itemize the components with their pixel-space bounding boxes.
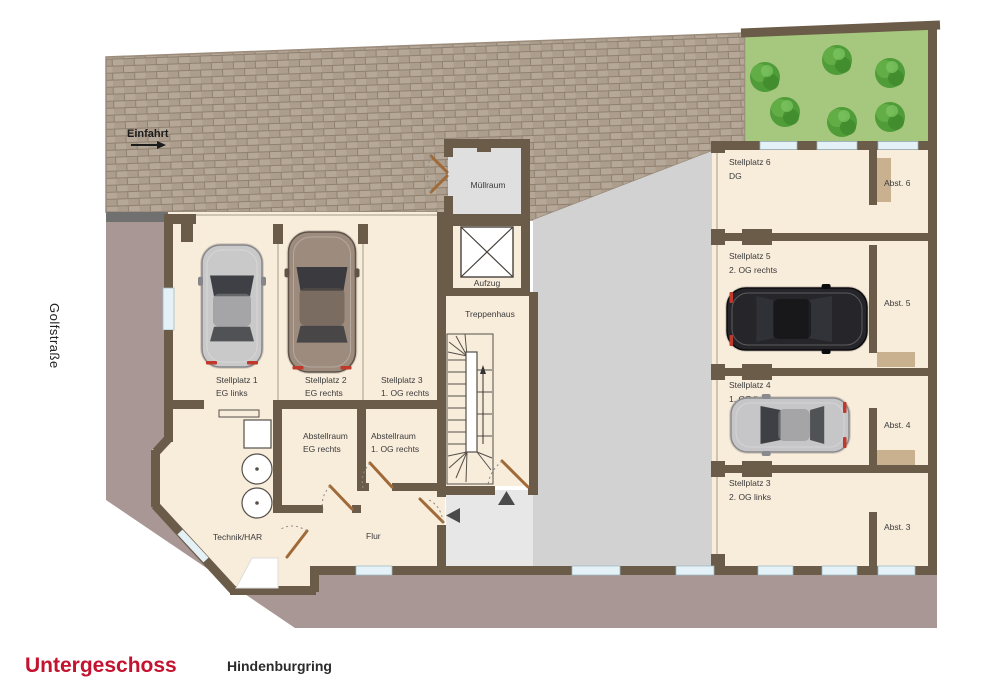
car-silver-stellplatz-4: [729, 394, 851, 456]
partition: [357, 400, 366, 491]
wall: [181, 224, 193, 242]
room-label-muellraum: Müllraum: [471, 180, 506, 190]
left-wall: [164, 214, 173, 288]
stall-label: Stellplatz 5: [729, 251, 771, 261]
muellraum-stub: [477, 139, 491, 152]
tree-icon: [822, 45, 852, 75]
wall-stub: [358, 224, 368, 244]
garden-right-wall: [928, 26, 937, 142]
tree-icon: [750, 62, 780, 92]
muellraum-wall: [444, 139, 453, 157]
tree-icon: [875, 58, 905, 88]
floorplan-drawing: Einfahrt: [0, 0, 1000, 698]
window: [878, 566, 915, 575]
window: [822, 566, 857, 575]
aufzug-wall: [444, 288, 530, 296]
abst-eg-bottom: [273, 505, 323, 513]
tank-dot: [255, 467, 259, 471]
car-black-stellplatz-5: [725, 284, 869, 354]
room-label-abstellraum-eg: EG rechts: [303, 444, 341, 454]
abst-closet: [877, 450, 915, 465]
page-title: Untergeschoss: [25, 654, 177, 677]
left-wall-lower: [151, 450, 160, 507]
abst-wall: [869, 512, 877, 566]
window: [817, 142, 857, 150]
stair-spine: [466, 352, 477, 452]
tree-icon: [827, 107, 857, 137]
room-label-abstellraum-eg: Abstellraum: [303, 431, 348, 441]
wall-stub: [273, 224, 283, 244]
back-wall: [168, 400, 204, 409]
car-silver-stellplatz-1: [198, 243, 266, 369]
stall-label: 2. OG links: [729, 492, 771, 502]
tree-icon: [875, 102, 905, 132]
window: [878, 142, 918, 150]
street-label-left: Golfstraße: [47, 303, 62, 369]
room-label-flur: Flur: [366, 531, 381, 541]
window: [676, 566, 714, 575]
row-divider-block: [742, 229, 772, 245]
aufzug-wall: [444, 218, 453, 296]
stall-label: Stellplatz 4: [729, 380, 771, 390]
stall-label: 2. OG rechts: [729, 265, 777, 275]
right-wall: [437, 525, 446, 566]
back-wall: [367, 400, 445, 409]
bottom-wall-run: [437, 566, 937, 575]
wall-stub: [711, 141, 725, 153]
right-wall: [928, 141, 937, 575]
floorplan-page: Einfahrt: [0, 0, 1000, 698]
stall-label: Stellplatz 2: [305, 375, 347, 385]
street-label-bottom: Hindenburgring: [227, 658, 332, 674]
abst-label: Abst. 6: [884, 178, 911, 188]
entrance-vestibule: [446, 490, 533, 566]
treppenhaus-wall: [437, 486, 495, 495]
abst-wall: [869, 149, 877, 205]
window: [758, 566, 793, 575]
window: [572, 566, 620, 575]
tank-dot: [255, 501, 259, 505]
tree-icon: [770, 97, 800, 127]
abst-label: Abst. 3: [884, 522, 911, 532]
room-label-aufzug: Aufzug: [474, 278, 501, 288]
car-bronze-stellplatz-2: [285, 230, 360, 374]
room-label-treppenhaus: Treppenhaus: [465, 309, 515, 319]
stall-label: EG rechts: [305, 388, 343, 398]
stall-label: 1. OG rechts: [381, 388, 429, 398]
window: [163, 288, 174, 330]
einfahrt-label: Einfahrt: [127, 128, 169, 140]
aufzug-wall: [521, 218, 530, 296]
row-divider-block: [742, 364, 772, 380]
stall-label: DG: [729, 171, 742, 181]
stall-label: Stellplatz 3: [381, 375, 423, 385]
aufzug-wall: [444, 218, 530, 226]
abst-closet: [877, 352, 915, 367]
wall-stub: [711, 554, 725, 566]
row-divider-block: [742, 461, 772, 477]
back-wall: [277, 400, 367, 409]
treppenhaus-wall: [529, 292, 538, 494]
window: [760, 142, 797, 150]
abst-label: Abst. 4: [884, 420, 911, 430]
window: [356, 566, 392, 575]
treppenhaus-floor: [446, 296, 529, 486]
room-label-technik: Technik/HAR: [213, 532, 262, 542]
abst-label: Abst. 5: [884, 298, 911, 308]
left-wall: [164, 330, 173, 442]
abst-wall: [869, 408, 877, 465]
equipment-box: [244, 420, 271, 448]
stall-label: EG links: [216, 388, 248, 398]
stall-label: Stellplatz 3: [729, 478, 771, 488]
room-label-abstellraum-og: Abstellraum: [371, 431, 416, 441]
treppenhaus-wall: [528, 486, 538, 495]
abst-wall: [869, 245, 877, 353]
stall-label: Stellplatz 1: [216, 375, 258, 385]
stall-label: Stellplatz 6: [729, 157, 771, 167]
room-label-abstellraum-og: 1. OG rechts: [371, 444, 419, 454]
right-building: Stellplatz 6 DG Abst. 6 Stellplatz 5 2. …: [711, 141, 937, 575]
partition: [273, 400, 282, 512]
muellraum-wall: [521, 139, 530, 222]
